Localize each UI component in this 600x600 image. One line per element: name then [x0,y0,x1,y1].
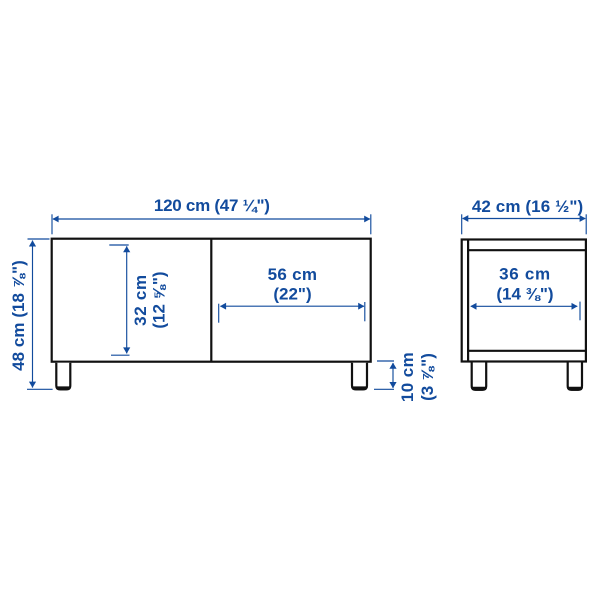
svg-text:10 cm: 10 cm [398,352,417,402]
svg-text:(14 ⅜"): (14 ⅜") [496,284,553,303]
svg-text:(22"): (22") [273,284,311,303]
svg-text:48 cm (18 ⅞"): 48 cm (18 ⅞") [9,260,28,371]
svg-text:120 cm (47 ¼"): 120 cm (47 ¼") [154,196,270,215]
svg-text:42 cm (16 ½"): 42 cm (16 ½") [472,197,583,216]
svg-text:56 cm: 56 cm [268,265,318,284]
svg-text:(12 ⅝"): (12 ⅝") [150,271,169,328]
svg-text:32 cm: 32 cm [131,274,150,326]
svg-text:(3 ⅞"): (3 ⅞") [418,353,437,401]
svg-text:36 cm: 36 cm [499,265,551,284]
